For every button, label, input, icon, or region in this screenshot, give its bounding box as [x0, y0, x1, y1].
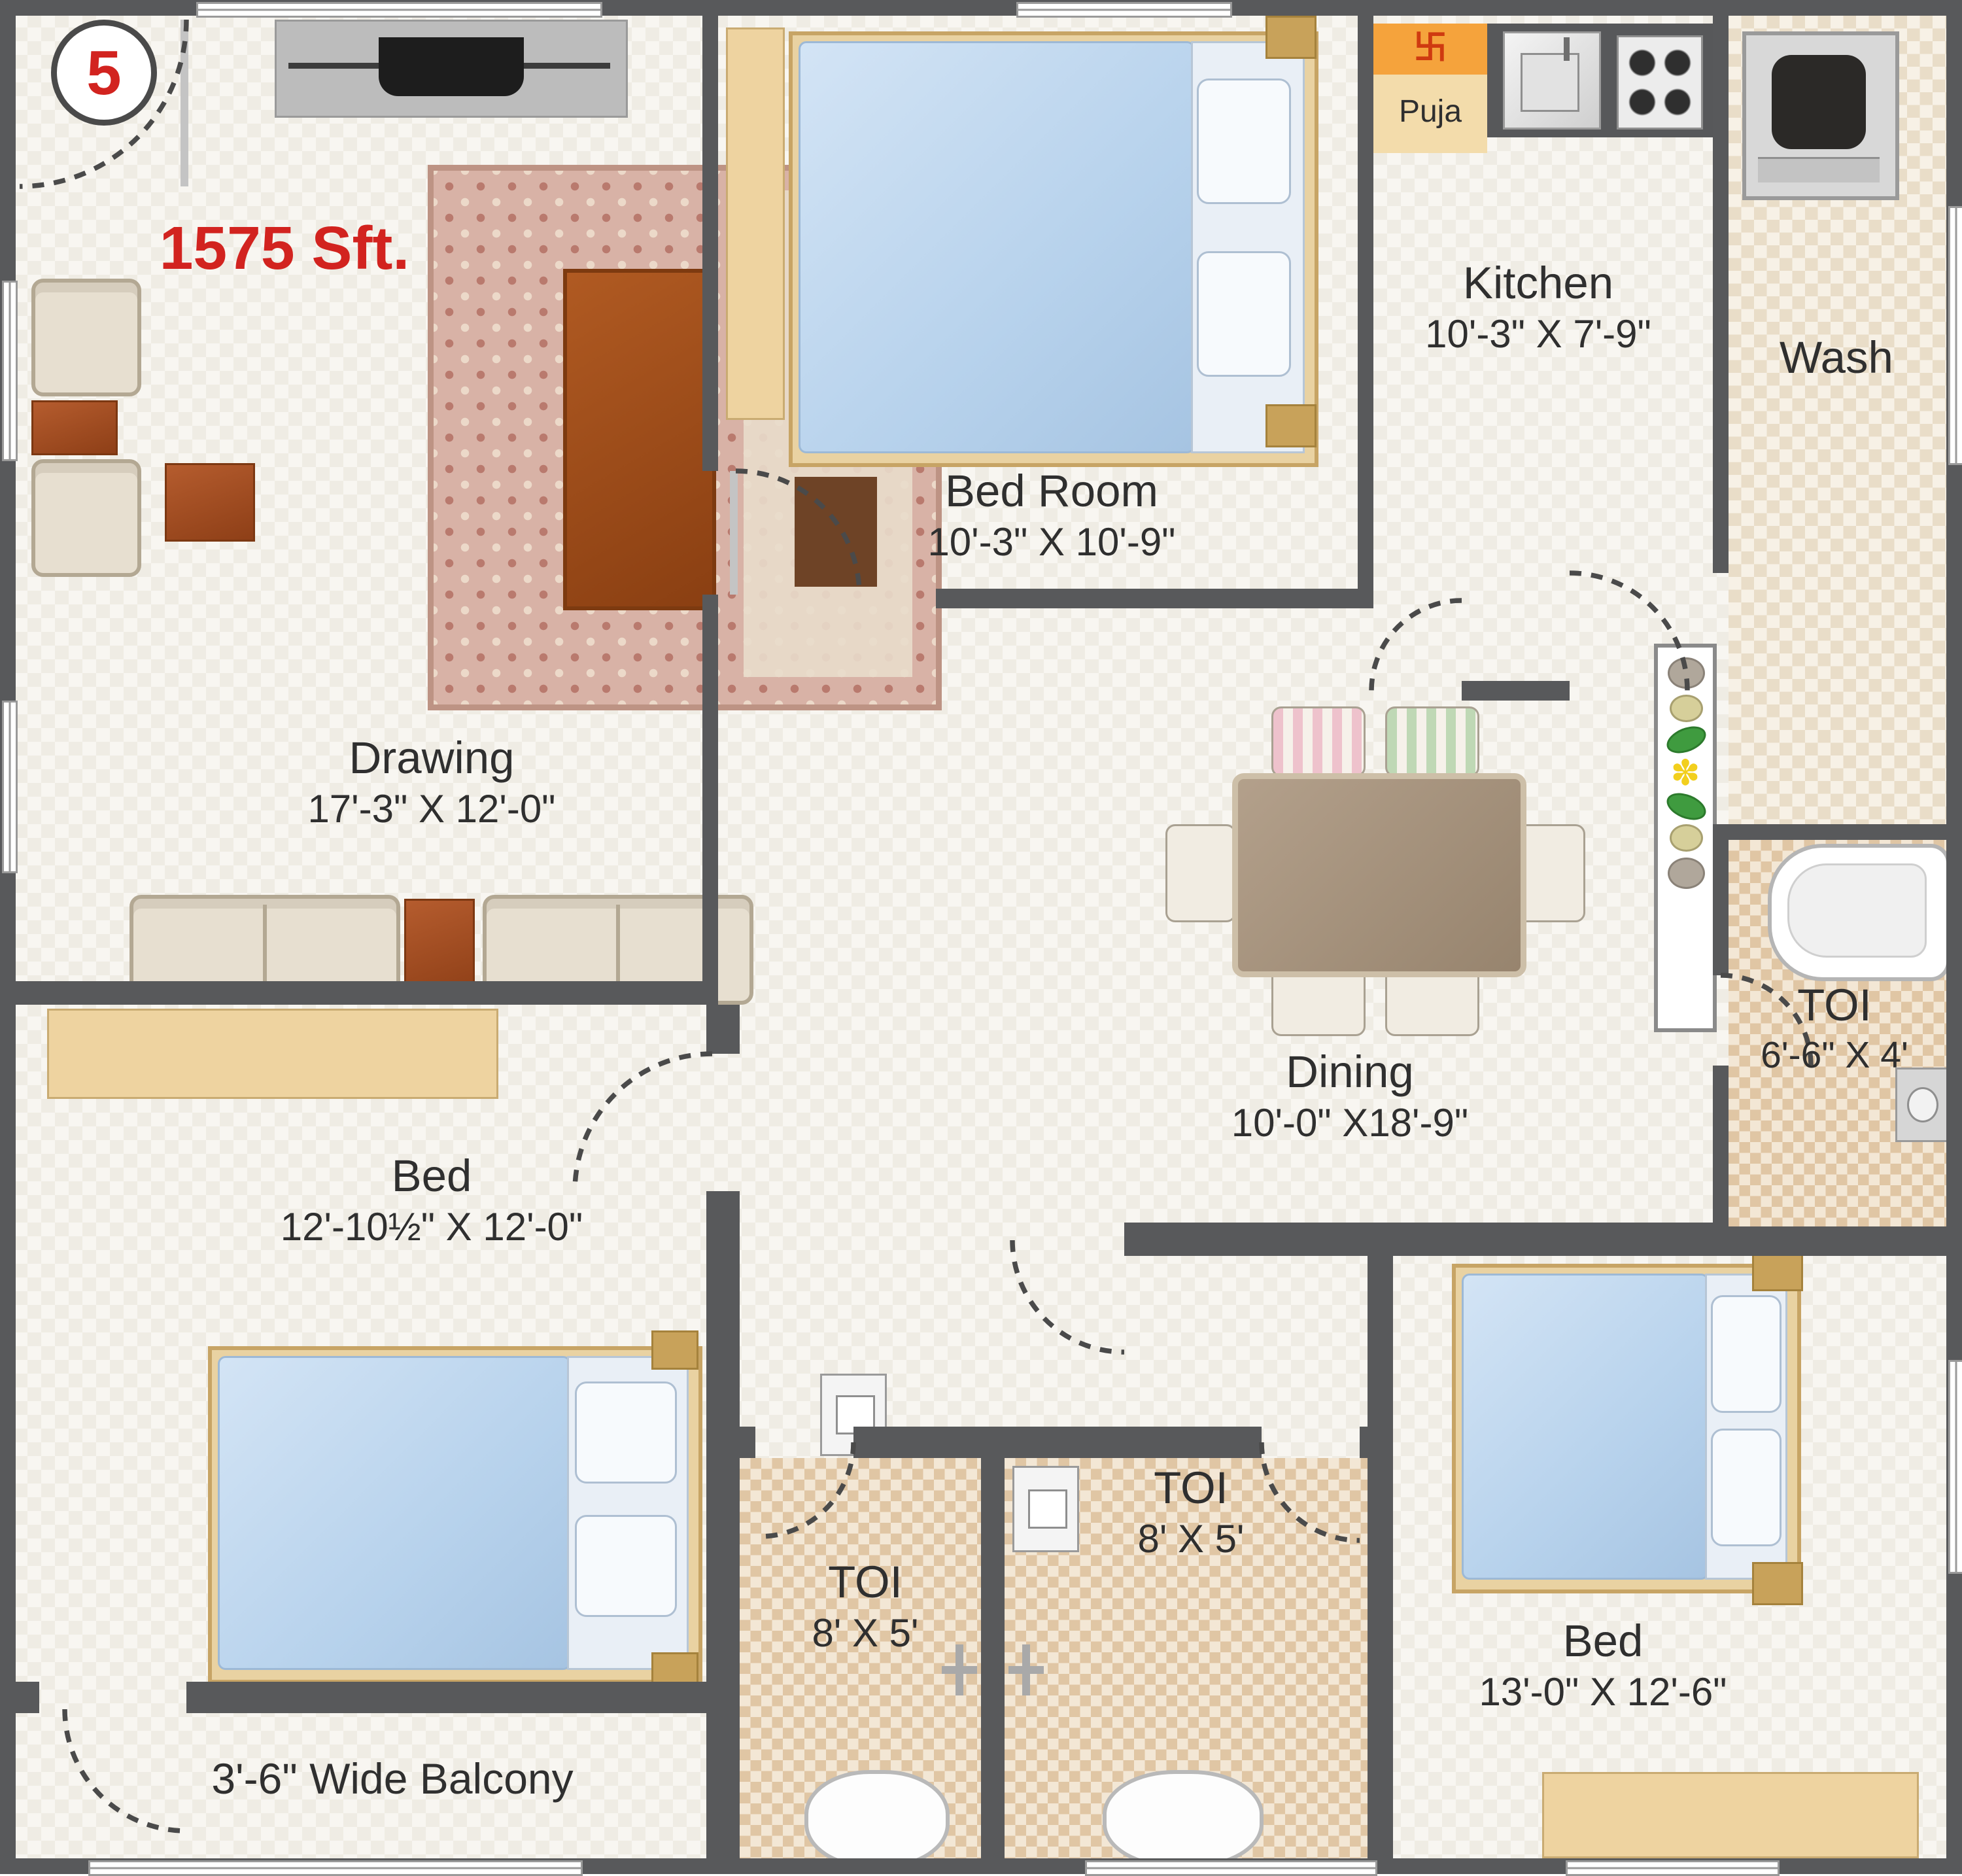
toilet-right-dims: 8' X 5' [1075, 1516, 1307, 1565]
toilet-left-door-arc [759, 1442, 853, 1537]
dining-name: Dining [1130, 1044, 1570, 1100]
drawing-dims: 17'-3" X 12'-0" [118, 786, 746, 835]
bed-right-name: Bed [1397, 1613, 1809, 1669]
kitchen-left-door-arc [1371, 600, 1462, 691]
drawing-label: Drawing 17'-3" X 12'-0" [118, 730, 746, 835]
corridor-door-arc [1012, 1240, 1124, 1352]
toilet-left-name: TOI [755, 1554, 975, 1610]
total-area-label: 1575 Sft. [78, 212, 490, 288]
toilet-right-name: TOI [1075, 1460, 1307, 1516]
bedroom-top-label: Bed Room 10'-3" X 10'-9" [785, 463, 1318, 568]
kitchen-name: Kitchen [1373, 255, 1703, 311]
wash-name: Wash [1730, 330, 1942, 386]
kitchen-dims: 10'-3" X 7'-9" [1373, 311, 1703, 360]
bed-left-label: Bed 12'-10½" X 12'-0" [137, 1148, 726, 1253]
toilet-left-label: TOI 8' X 5' [755, 1554, 975, 1659]
toilet-left-dims: 8' X 5' [755, 1610, 975, 1659]
kitchen-label: Kitchen 10'-3" X 7'-9" [1373, 255, 1703, 360]
bedroom-top-dims: 10'-3" X 10'-9" [785, 519, 1318, 568]
unit-number: 5 [86, 37, 121, 108]
total-area-text: 1575 Sft. [160, 214, 410, 283]
kitchen-right-door-arc [1570, 573, 1687, 691]
bed-right-label: Bed 13'-0" X 12'-6" [1397, 1613, 1809, 1718]
bed-right-dims: 13'-0" X 12'-6" [1397, 1669, 1809, 1718]
balcony-label: 3'-6" Wide Balcony [108, 1752, 677, 1807]
balcony-name: 3'-6" Wide Balcony [108, 1752, 677, 1807]
bedroom-top-name: Bed Room [785, 463, 1318, 519]
dining-label: Dining 10'-0" X18'-9" [1130, 1044, 1570, 1149]
dining-dims: 10'-0" X18'-9" [1130, 1100, 1570, 1149]
toilet-attached-label: TOI 6'-6" X 4' [1725, 977, 1944, 1081]
bed-left-name: Bed [137, 1148, 726, 1204]
bed-left-dims: 12'-10½" X 12'-0" [137, 1204, 726, 1253]
floor-plan: 卐 Puja ✽ [0, 0, 1962, 1874]
toilet-attached-dims: 6'-6" X 4' [1725, 1034, 1944, 1080]
wash-label: Wash [1730, 330, 1942, 386]
unit-number-badge: 5 [51, 20, 157, 126]
toilet-right-label: TOI 8' X 5' [1075, 1460, 1307, 1565]
drawing-name: Drawing [118, 730, 746, 786]
toilet-attached-name: TOI [1725, 977, 1944, 1034]
